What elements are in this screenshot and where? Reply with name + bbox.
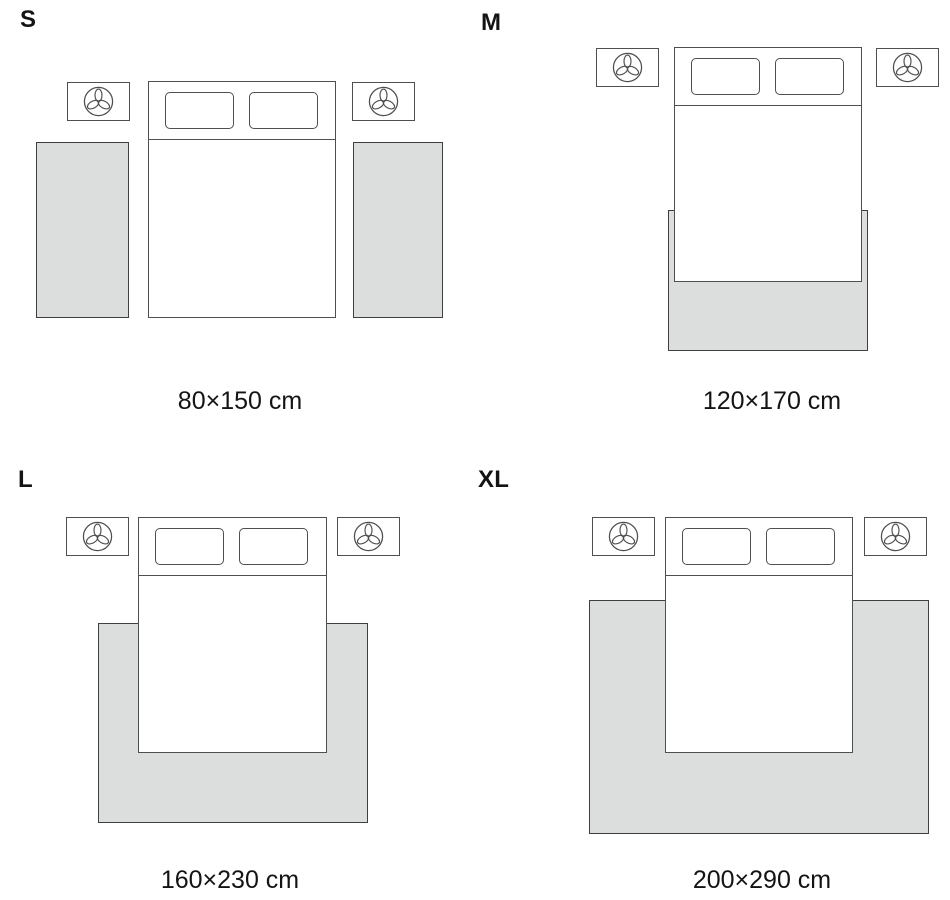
pillow-left — [165, 92, 234, 129]
pillow-right — [775, 58, 844, 95]
nightstand-left — [66, 517, 129, 556]
bed — [674, 47, 862, 282]
size-label-s: S — [20, 6, 36, 34]
plant-icon — [82, 85, 115, 118]
size-label-m: M — [481, 9, 501, 37]
rug-right-runner — [353, 142, 443, 318]
plant-icon — [81, 520, 114, 553]
pillow-right — [766, 528, 835, 565]
bed — [138, 517, 327, 753]
plant-icon — [607, 520, 640, 553]
nightstand-right — [876, 48, 939, 87]
bed-headboard-area — [675, 48, 861, 106]
pillow-right — [239, 528, 308, 565]
nightstand-right — [864, 517, 927, 556]
rug-size-guide: S 80×150 cm M — [0, 0, 950, 900]
pillow-right — [249, 92, 318, 129]
nightstand-left — [67, 82, 130, 121]
nightstand-right — [337, 517, 400, 556]
dimension-label-m: 120×170 cm — [662, 388, 882, 414]
pillow-left — [691, 58, 760, 95]
bed — [665, 517, 853, 753]
nightstand-left — [596, 48, 659, 87]
dimension-label-s: 80×150 cm — [130, 388, 350, 414]
nightstand-right — [352, 82, 415, 121]
bed-headboard-area — [149, 82, 335, 140]
dimension-label-l: 160×230 cm — [120, 867, 340, 893]
rug-left-runner — [36, 142, 129, 318]
dimension-label-xl: 200×290 cm — [652, 867, 872, 893]
bed — [148, 81, 336, 318]
plant-icon — [891, 51, 924, 84]
plant-icon — [367, 85, 400, 118]
pillow-left — [682, 528, 751, 565]
plant-icon — [879, 520, 912, 553]
size-label-xl: XL — [478, 466, 509, 494]
plant-icon — [352, 520, 385, 553]
bed-headboard-area — [666, 518, 852, 576]
size-label-l: L — [18, 466, 33, 494]
bed-headboard-area — [139, 518, 326, 576]
nightstand-left — [592, 517, 655, 556]
plant-icon — [611, 51, 644, 84]
pillow-left — [155, 528, 224, 565]
